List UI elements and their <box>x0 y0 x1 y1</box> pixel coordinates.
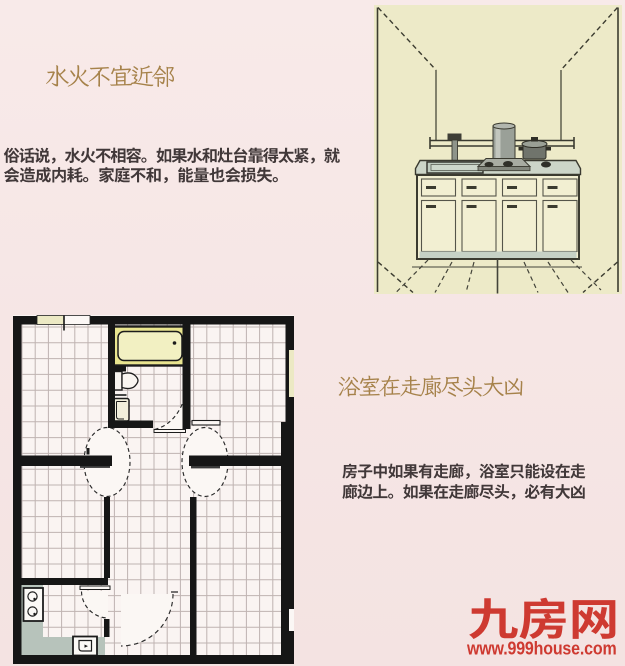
svg-text:www.999house.com: www.999house.com <box>466 638 616 659</box>
